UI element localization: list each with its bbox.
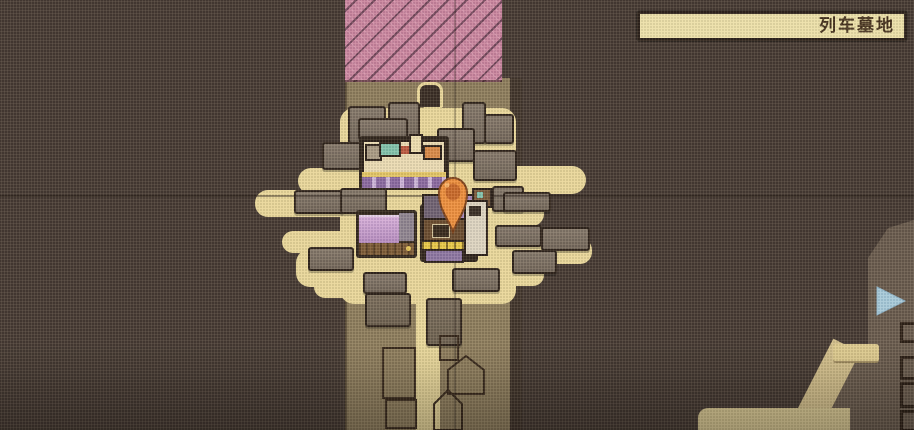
crate-teal-dot	[477, 192, 483, 198]
rubble-block	[473, 150, 517, 181]
building-roof-gray	[399, 213, 414, 241]
rubble-block	[294, 190, 344, 214]
building-rooftop-shop	[359, 134, 449, 190]
rubble-block	[512, 250, 557, 274]
chimney-icon	[409, 134, 423, 154]
edge-structure-outline	[900, 356, 914, 380]
rubble-block	[484, 114, 514, 144]
roof-pot	[423, 145, 442, 160]
region-name-label: 列车墓地	[637, 11, 907, 41]
map-exit-arrow-right-icon[interactable]	[874, 284, 908, 318]
hazard-zone-north	[345, 0, 502, 82]
edge-structure-outline	[900, 322, 914, 343]
location-pin-icon	[437, 176, 469, 234]
rubble-block	[365, 293, 411, 327]
trailer-window	[469, 206, 481, 216]
rubble-block	[308, 247, 354, 271]
rubble-block	[541, 227, 590, 251]
roof-teal-box	[379, 142, 401, 157]
building-purple-shack	[356, 210, 417, 258]
ruin-outlines	[368, 328, 508, 430]
east-ledge	[833, 344, 879, 363]
map-viewport[interactable]: 列车墓地	[0, 0, 914, 430]
rubble-block	[452, 268, 500, 292]
building-roof	[359, 215, 399, 243]
lamp-dot	[406, 246, 411, 251]
rubble-block	[495, 225, 542, 247]
region-name-text: 列车墓地	[819, 16, 895, 35]
south-platform	[698, 408, 850, 430]
rubble-block	[363, 272, 407, 294]
arch-gate-icon	[417, 82, 443, 107]
edge-structure-outline	[900, 410, 914, 430]
edge-structure-outline	[900, 382, 914, 408]
building-lower	[424, 249, 464, 263]
